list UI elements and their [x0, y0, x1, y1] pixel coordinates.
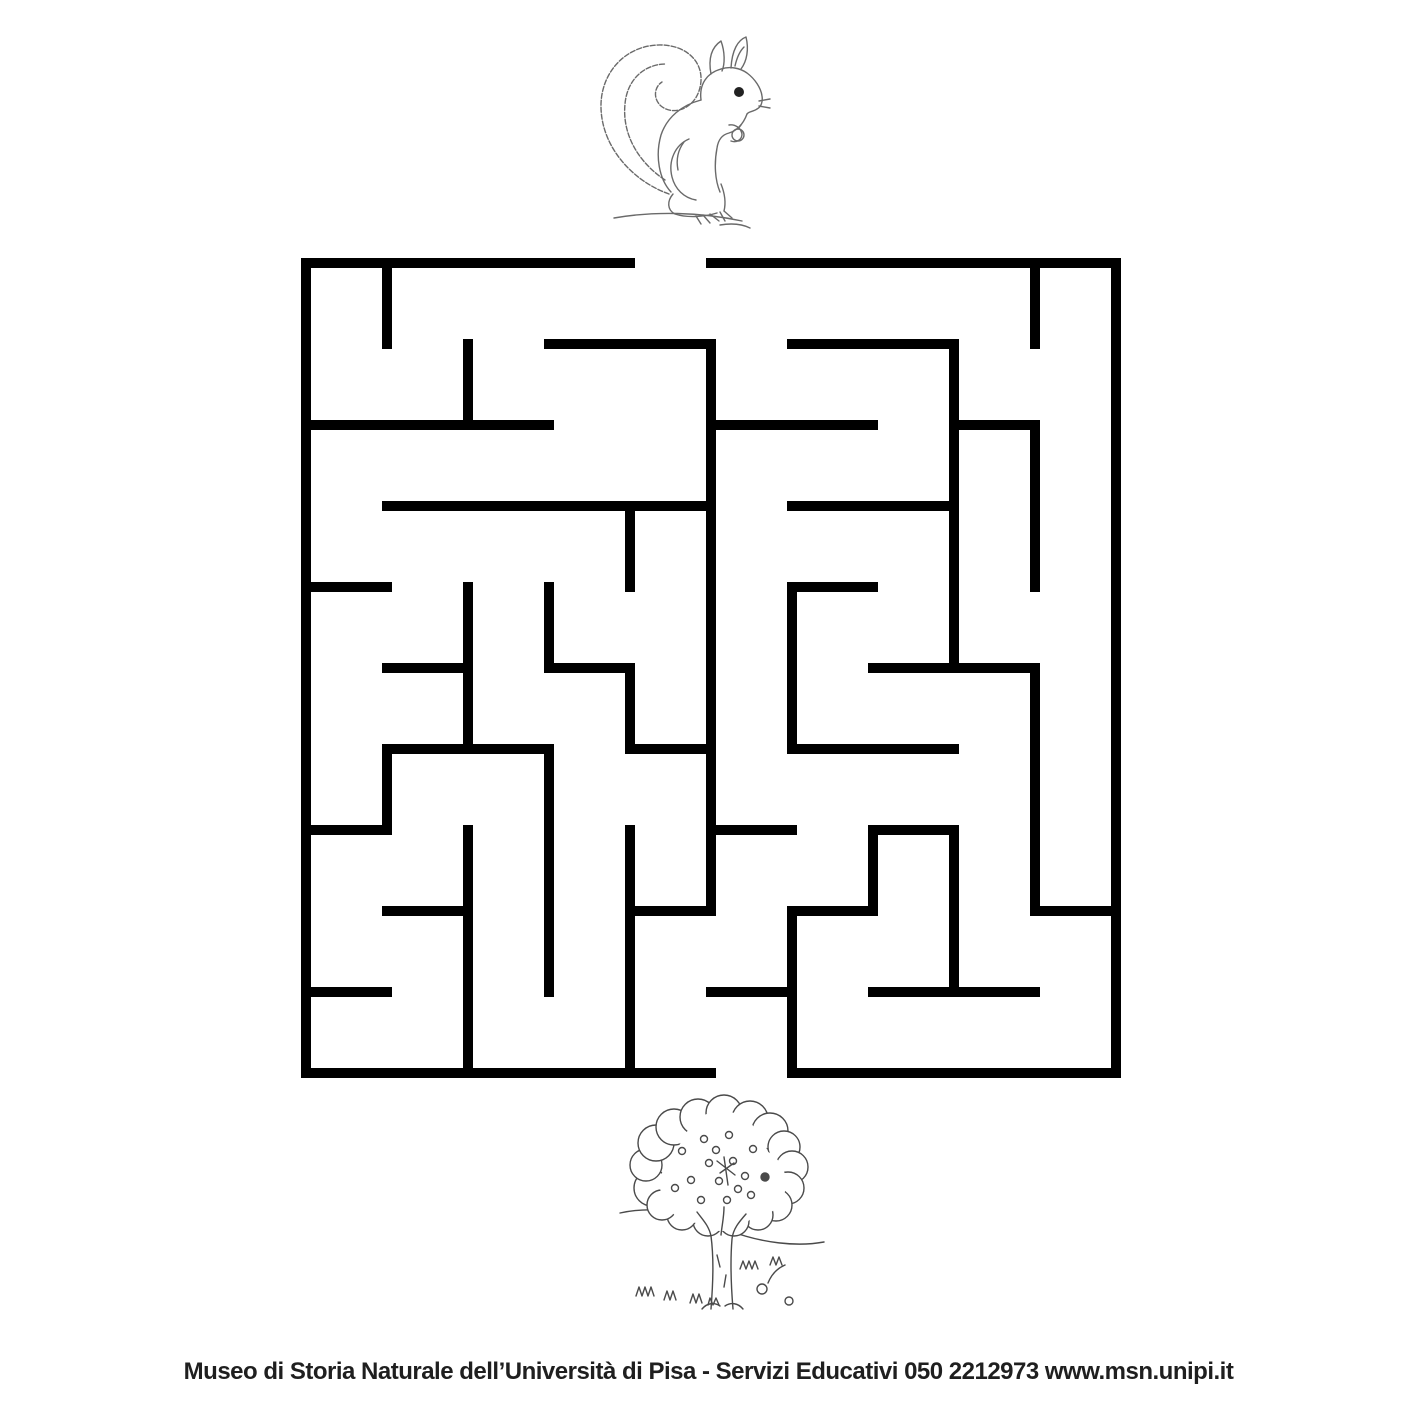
maze-wall — [301, 663, 311, 754]
maze-wall — [706, 420, 716, 511]
maze-wall — [625, 339, 716, 349]
maze-wall — [382, 258, 473, 268]
maze-wall — [949, 420, 959, 511]
maze-wall — [463, 582, 473, 673]
maze-wall — [463, 825, 473, 916]
tree-line-art — [620, 1095, 824, 1309]
footer-credit: Museo di Storia Naturale dell’Università… — [0, 1358, 1417, 1386]
maze-wall — [868, 258, 959, 268]
maze-wall — [787, 339, 878, 349]
maze-wall — [787, 744, 878, 754]
maze-wall — [301, 582, 311, 673]
maze-wall — [625, 663, 635, 754]
maze-wall — [544, 906, 554, 997]
maze-wall — [787, 501, 878, 511]
maze-wall — [301, 987, 311, 1078]
maze-wall — [625, 906, 635, 997]
maze-wall — [301, 987, 392, 997]
maze-wall — [544, 825, 554, 916]
maze-wall — [949, 501, 959, 592]
maze-wall — [949, 825, 959, 916]
maze-wall — [787, 906, 797, 997]
maze-wall — [706, 420, 797, 430]
maze-wall — [625, 744, 716, 754]
maze-wall — [949, 906, 959, 997]
maze-wall — [1111, 744, 1121, 835]
maze-wall — [868, 663, 959, 673]
maze-wall — [382, 663, 473, 673]
maze-wall — [301, 1068, 392, 1078]
maze-wall — [1111, 258, 1121, 349]
maze-wall — [625, 906, 716, 916]
maze-wall — [868, 744, 959, 754]
maze-wall — [1030, 744, 1040, 835]
maze-wall — [1111, 825, 1121, 916]
maze-wall — [949, 339, 959, 430]
maze-wall — [544, 582, 554, 673]
maze-wall — [706, 825, 716, 916]
maze-wall — [301, 744, 311, 835]
maze-wall — [463, 258, 554, 268]
maze-wall — [301, 825, 311, 916]
maze-wall — [1111, 987, 1121, 1078]
maze-wall — [301, 420, 392, 430]
tree-end-illustration — [612, 1093, 832, 1313]
maze-wall — [301, 825, 392, 835]
maze-wall — [787, 906, 878, 916]
maze-wall — [949, 663, 1040, 673]
maze-wall — [787, 987, 797, 1078]
maze-wall — [1111, 906, 1121, 997]
maze-wall — [706, 663, 716, 754]
maze-wall — [544, 1068, 635, 1078]
maze-wall — [382, 906, 473, 916]
maze-wall — [382, 1068, 473, 1078]
maze-wall — [706, 339, 716, 430]
maze-wall — [625, 501, 635, 592]
maze-wall — [1030, 663, 1040, 754]
maze-wall — [787, 663, 797, 754]
maze-wall — [625, 1068, 716, 1078]
maze-wall — [787, 1068, 878, 1078]
maze-wall — [382, 744, 473, 754]
maze-wall — [1030, 825, 1040, 916]
maze-wall — [625, 501, 716, 511]
maze-wall — [544, 339, 635, 349]
maze-wall — [949, 1068, 1040, 1078]
maze-wall — [463, 339, 473, 430]
maze-wall — [787, 258, 878, 268]
maze-wall — [1111, 663, 1121, 754]
maze-wall — [868, 825, 959, 835]
maze-wall — [301, 258, 392, 268]
worksheet-page: Museo di Storia Naturale dell’Università… — [0, 0, 1417, 1417]
maze-wall — [382, 420, 473, 430]
maze-wall — [301, 420, 311, 511]
maze-wall — [625, 825, 635, 916]
maze-wall — [868, 501, 959, 511]
maze-wall — [301, 501, 311, 592]
maze-wall — [625, 987, 635, 1078]
maze-wall — [1030, 501, 1040, 592]
maze-wall — [301, 906, 311, 997]
maze-wall — [1030, 420, 1040, 511]
maze-wall — [463, 987, 473, 1078]
maze-walls — [301, 258, 1121, 1078]
maze-wall — [706, 582, 716, 673]
maze-wall — [544, 663, 635, 673]
maze-wall — [1111, 339, 1121, 430]
maze-wall — [706, 501, 716, 592]
maze-wall — [787, 420, 878, 430]
maze-wall — [544, 258, 635, 268]
maze-wall — [301, 258, 311, 349]
maze-wall — [706, 825, 797, 835]
maze-wall — [868, 987, 959, 997]
maze-wall — [1030, 258, 1121, 268]
maze-wall — [949, 582, 959, 673]
maze-wall — [382, 258, 392, 349]
maze-wall — [868, 1068, 959, 1078]
maze-wall — [706, 987, 797, 997]
maze-wall — [787, 582, 797, 673]
maze-wall — [949, 258, 1040, 268]
maze-wall — [1030, 1068, 1121, 1078]
maze-wall — [706, 744, 716, 835]
maze-wall — [463, 420, 554, 430]
maze-wall — [706, 258, 797, 268]
maze-wall — [382, 501, 473, 511]
maze-wall — [949, 420, 1040, 430]
maze-wall — [463, 906, 473, 997]
maze-wall — [382, 744, 392, 835]
maze-wall — [1111, 582, 1121, 673]
maze-wall — [301, 339, 311, 430]
maze-wall — [463, 744, 554, 754]
maze-wall — [544, 501, 635, 511]
maze-wall — [949, 987, 1040, 997]
maze-wall — [868, 825, 878, 916]
maze-wall — [301, 582, 392, 592]
maze-wall — [463, 501, 554, 511]
maze-wall — [463, 663, 473, 754]
maze-wall — [1030, 258, 1040, 349]
maze-wall — [1030, 906, 1121, 916]
maze-wall — [787, 582, 878, 592]
maze-wall — [1111, 420, 1121, 511]
maze-wall — [544, 744, 554, 835]
maze-wall — [463, 1068, 554, 1078]
maze-wall — [1111, 501, 1121, 592]
maze-wall — [868, 339, 959, 349]
